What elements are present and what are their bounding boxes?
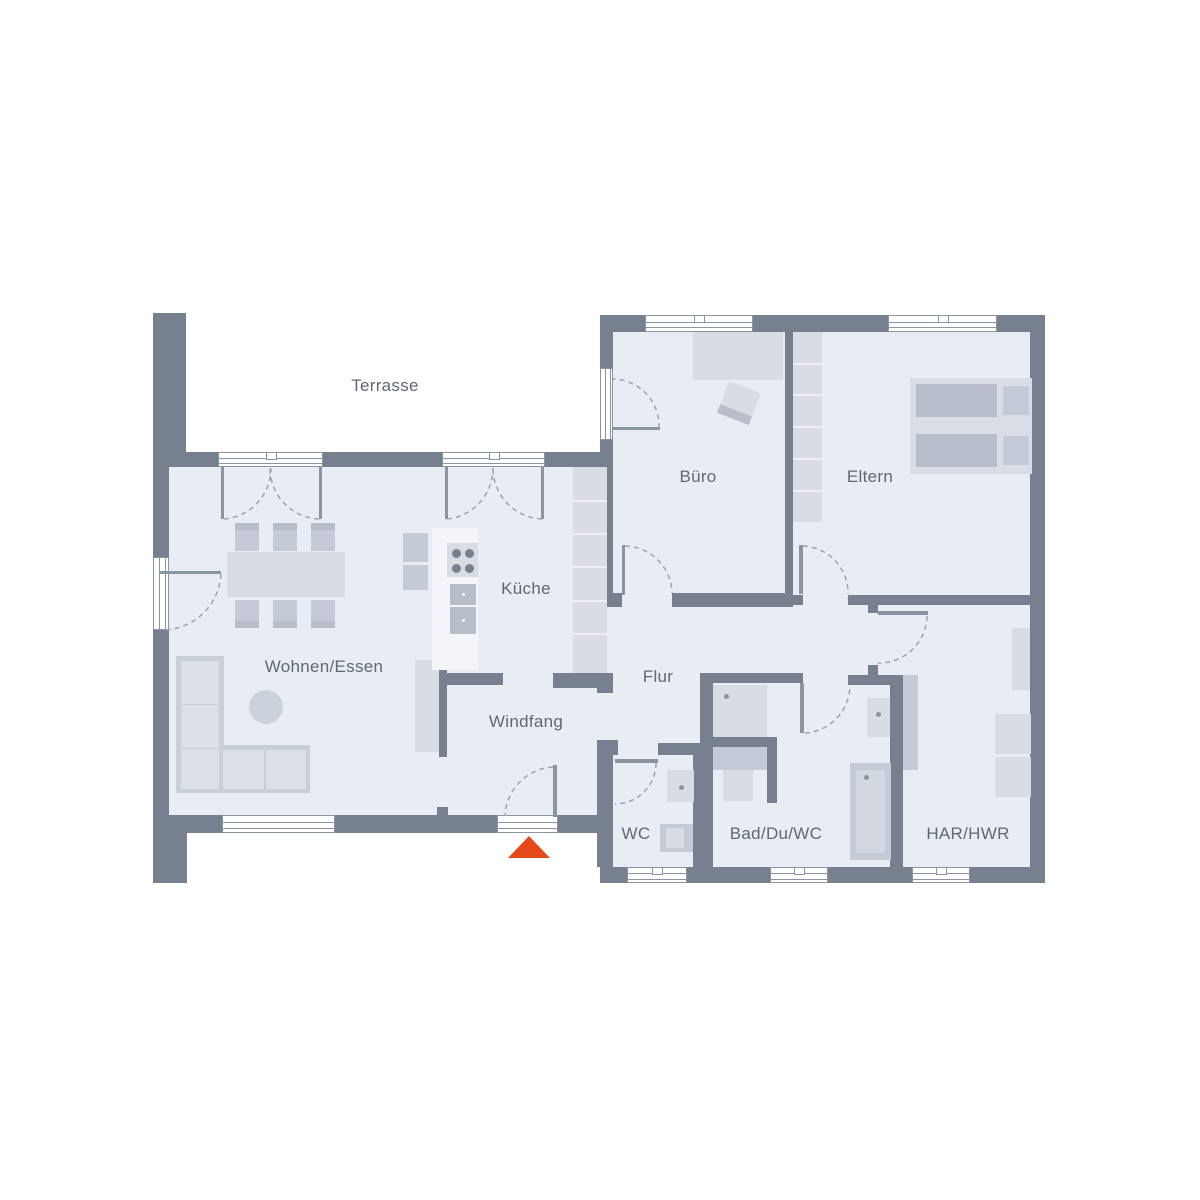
chair-back — [273, 523, 297, 530]
window-pane-line — [219, 463, 322, 464]
sofa-cushion — [223, 750, 264, 789]
room-label-terrasse: Terrasse — [351, 376, 419, 396]
cabinet-segment-line — [573, 566, 607, 568]
har-window — [912, 867, 970, 883]
west-door-leaf — [160, 571, 221, 574]
windfang-north-stub-east — [553, 673, 604, 688]
basin-partition — [767, 737, 777, 803]
entrance-marker — [508, 836, 550, 858]
window-marker — [794, 867, 805, 875]
southwest-corner — [153, 815, 187, 883]
terrace-door2-leaf-left — [445, 467, 448, 519]
wc-sink-dot — [679, 785, 684, 790]
har-panel — [903, 675, 918, 770]
bad-har-wall — [890, 675, 903, 867]
terrace-door2-leaf-right — [541, 467, 544, 519]
south-window-living — [222, 815, 335, 833]
office-desk — [693, 332, 783, 380]
chair-seat — [311, 530, 335, 551]
pillow — [1003, 386, 1029, 415]
window-marker — [266, 452, 277, 460]
window-pane-line — [605, 369, 606, 439]
cabinet-segment-line — [793, 363, 822, 365]
buero-door-leaf — [622, 545, 625, 595]
terrace-french-door-1 — [218, 452, 323, 467]
window-marker — [936, 867, 947, 875]
window-pane-line — [498, 822, 557, 823]
chair-back — [273, 621, 297, 628]
buero-terrace-door-leaf — [613, 427, 660, 430]
coffee-table — [249, 690, 283, 724]
shower-tray — [713, 685, 767, 737]
chair-seat — [311, 600, 335, 621]
window-pane-line — [646, 327, 752, 328]
window-marker — [694, 315, 705, 323]
terrace-french-door-2 — [442, 452, 545, 467]
har-door-leaf — [878, 611, 928, 615]
bathtub-inner — [856, 770, 885, 853]
bad-north-wall-west — [713, 673, 803, 683]
wc-toilet-inner — [666, 828, 684, 848]
tv-cabinet — [415, 660, 439, 752]
shower-drain — [724, 694, 729, 699]
buero-window — [645, 315, 753, 332]
kitchen-tall-cabinet — [573, 467, 607, 673]
washer — [995, 757, 1031, 797]
eltern-window — [888, 315, 997, 332]
room-label-bad-du-wc: Bad/Du/WC — [730, 824, 822, 844]
cabinet-segment-line — [793, 426, 822, 428]
wing-west-wall-upper — [600, 332, 613, 368]
window-marker — [938, 315, 949, 323]
oven-dot — [462, 593, 465, 596]
har-door-stub-north — [868, 603, 878, 613]
chair-back — [235, 523, 259, 530]
wing-west-wall-lower — [597, 740, 613, 867]
sofa-cushion — [181, 705, 219, 748]
mattress — [916, 384, 997, 417]
window-pane-line — [159, 558, 160, 629]
shower-wall — [708, 737, 775, 747]
bad-window — [770, 867, 828, 883]
chair-seat — [273, 530, 297, 551]
tub-dot — [864, 775, 869, 780]
cabinet-segment-line — [573, 533, 607, 535]
entrance-door-leaf — [553, 765, 557, 817]
windfang-north-stub-west — [447, 673, 503, 685]
oven-dot — [462, 619, 465, 622]
wc-corner-block — [604, 740, 618, 755]
west-terrace-door — [153, 557, 169, 630]
window-pane-line — [443, 463, 544, 464]
terrace-door1-leaf-left — [221, 467, 224, 519]
room-label-eltern: Eltern — [847, 467, 893, 487]
buero-south-wall — [672, 593, 793, 607]
window-pane-line — [913, 879, 969, 880]
terrace-door1-leaf-right — [319, 467, 322, 519]
kitchen-wall-cabinet — [403, 533, 428, 562]
wc-door-leaf — [615, 759, 658, 763]
window-pane-line — [610, 369, 611, 439]
room-label-windfang: Windfang — [489, 712, 563, 732]
window-pane-line — [628, 879, 686, 880]
window-marker — [652, 867, 663, 875]
window-pane-line — [889, 327, 996, 328]
burner — [465, 549, 474, 558]
window-pane-line — [223, 822, 334, 823]
buero-terrace-door — [600, 368, 613, 440]
washbasin — [723, 770, 753, 801]
basin-dot — [876, 712, 881, 717]
window-marker — [489, 452, 500, 460]
window-pane-line — [223, 828, 334, 829]
room-label-wc: WC — [622, 824, 651, 844]
har-shelf — [1012, 628, 1030, 690]
cooktop — [447, 543, 478, 577]
window-pane-line — [771, 879, 827, 880]
bad-door-leaf — [800, 683, 804, 733]
east-wall — [1030, 315, 1045, 883]
room-label-buero: Büro — [679, 467, 716, 487]
dining-table — [227, 552, 345, 597]
chair-seat — [235, 530, 259, 551]
sofa-cushion — [181, 661, 219, 704]
washer — [995, 714, 1031, 754]
sofa-cushion — [181, 749, 219, 789]
room-label-har-hwr: HAR/HWR — [926, 824, 1009, 844]
cabinet-segment-line — [793, 490, 822, 492]
chair-seat — [273, 600, 297, 621]
cabinet-segment-line — [573, 633, 607, 635]
burner — [452, 549, 461, 558]
cabinet-segment-line — [793, 458, 822, 460]
floor-plan: TerrasseBüroElternKücheWohnen/EssenFlurW… — [0, 0, 1200, 1200]
burner — [452, 564, 461, 573]
eltern-door-leaf — [799, 545, 803, 594]
chair-back — [311, 621, 335, 628]
sofa-cushion — [266, 750, 306, 789]
cabinet-segment-line — [793, 394, 822, 396]
chair-back — [235, 621, 259, 628]
room-label-wohnen-essen: Wohnen/Essen — [265, 657, 384, 677]
wall-basin — [867, 698, 890, 737]
wc-bad-wall — [693, 755, 713, 867]
chair-seat — [235, 600, 259, 621]
terrace-pier — [153, 313, 186, 467]
kitchen-wall-cabinet — [403, 565, 428, 590]
cabinet-segment-line — [573, 500, 607, 502]
buero-eltern-wall — [785, 332, 793, 595]
har-door-stub-south — [868, 665, 878, 675]
wc-window — [627, 867, 687, 883]
window-pane-line — [498, 828, 557, 829]
wardrobe — [793, 332, 822, 522]
chair-back — [311, 523, 335, 530]
west-wall — [153, 467, 169, 833]
window-pane-line — [165, 558, 166, 629]
pillow — [1003, 436, 1029, 465]
burner — [465, 564, 474, 573]
vanity — [713, 747, 767, 770]
cabinet-segment-line — [573, 600, 607, 602]
room-label-flur: Flur — [643, 667, 673, 687]
eltern-south-wall-west — [793, 595, 803, 605]
mattress — [916, 434, 997, 467]
entrance-door-opening — [497, 815, 558, 833]
partition-stub — [437, 807, 448, 815]
room-label-kueche: Küche — [501, 579, 551, 599]
